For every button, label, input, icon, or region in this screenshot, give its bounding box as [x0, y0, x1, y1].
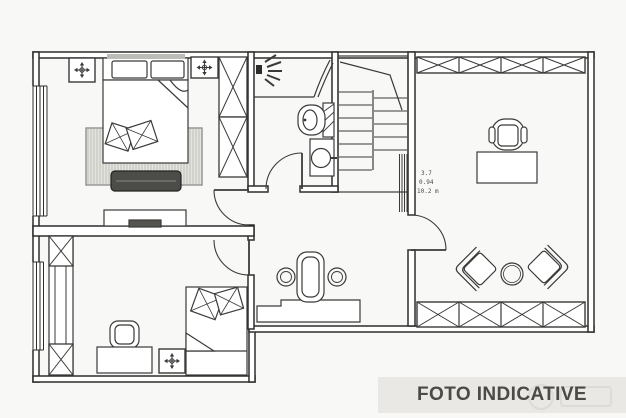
bedroom1-bench	[111, 171, 181, 191]
hall-stool-left	[277, 268, 295, 286]
bedroom2-desk	[97, 347, 152, 373]
wall-hall-west-lower	[248, 275, 254, 329]
wall-step	[249, 329, 255, 382]
svg-text:10.2 m: 10.2 m	[417, 188, 439, 195]
bathroom-toilet	[298, 103, 334, 137]
window-left-upper	[31, 86, 48, 216]
svg-text:3.7: 3.7	[421, 170, 432, 177]
wall-hall-east-upper	[408, 52, 415, 215]
window-left-lower	[31, 262, 46, 350]
wall-hall-east-lower	[408, 250, 415, 326]
bedroom2-wardrobe	[49, 236, 73, 375]
ceiling-fixture-icon-1	[69, 58, 95, 82]
bedroom2-bed	[186, 287, 247, 375]
ceiling-fixture-icon-3	[159, 349, 185, 373]
wall-bath-south-a	[248, 186, 268, 192]
hall-desk	[257, 300, 360, 322]
wall-bath-south-b	[300, 186, 338, 192]
dimension-annotation: 3.70.9410.2 m	[417, 170, 439, 195]
bedroom2-chair	[110, 321, 139, 348]
lounge-chair-left	[455, 247, 499, 291]
bedroom1-wardrobe	[219, 57, 247, 177]
wall-bottom-left	[33, 376, 255, 382]
hall-chair	[297, 252, 324, 302]
svg-text:0.94: 0.94	[419, 179, 434, 186]
floor-plan-drawing: 3.70.9410.2 m	[0, 0, 626, 418]
office-desk	[477, 152, 537, 183]
bathroom-sink	[310, 139, 337, 176]
stairs	[338, 56, 408, 192]
shower-head-icon	[256, 55, 282, 86]
watermark-banner: FOTO INDICATIVE	[378, 377, 626, 413]
wall-right	[588, 52, 594, 332]
lounge-table	[501, 263, 523, 285]
office-chair	[489, 119, 527, 150]
door-living-room	[411, 215, 446, 250]
door-bedroom-bottom	[214, 240, 249, 275]
ceiling-fixture-icon-2	[191, 57, 218, 78]
bedroom1-dresser	[104, 210, 186, 227]
hall-stool-right	[328, 268, 346, 286]
wardrobe-band-top	[417, 57, 585, 73]
wall-bedroom-bath	[248, 52, 254, 190]
watermark-text: FOTO INDICATIVE	[417, 384, 587, 406]
wardrobe-band-bottom	[417, 302, 585, 327]
floor-plan-page: 3.70.9410.2 m FOTO INDICATIVE	[0, 0, 626, 418]
lounge-chair-right	[526, 245, 570, 289]
door-bathroom	[266, 153, 302, 189]
stair-railing	[400, 154, 408, 212]
door-bedroom-top	[214, 190, 249, 225]
